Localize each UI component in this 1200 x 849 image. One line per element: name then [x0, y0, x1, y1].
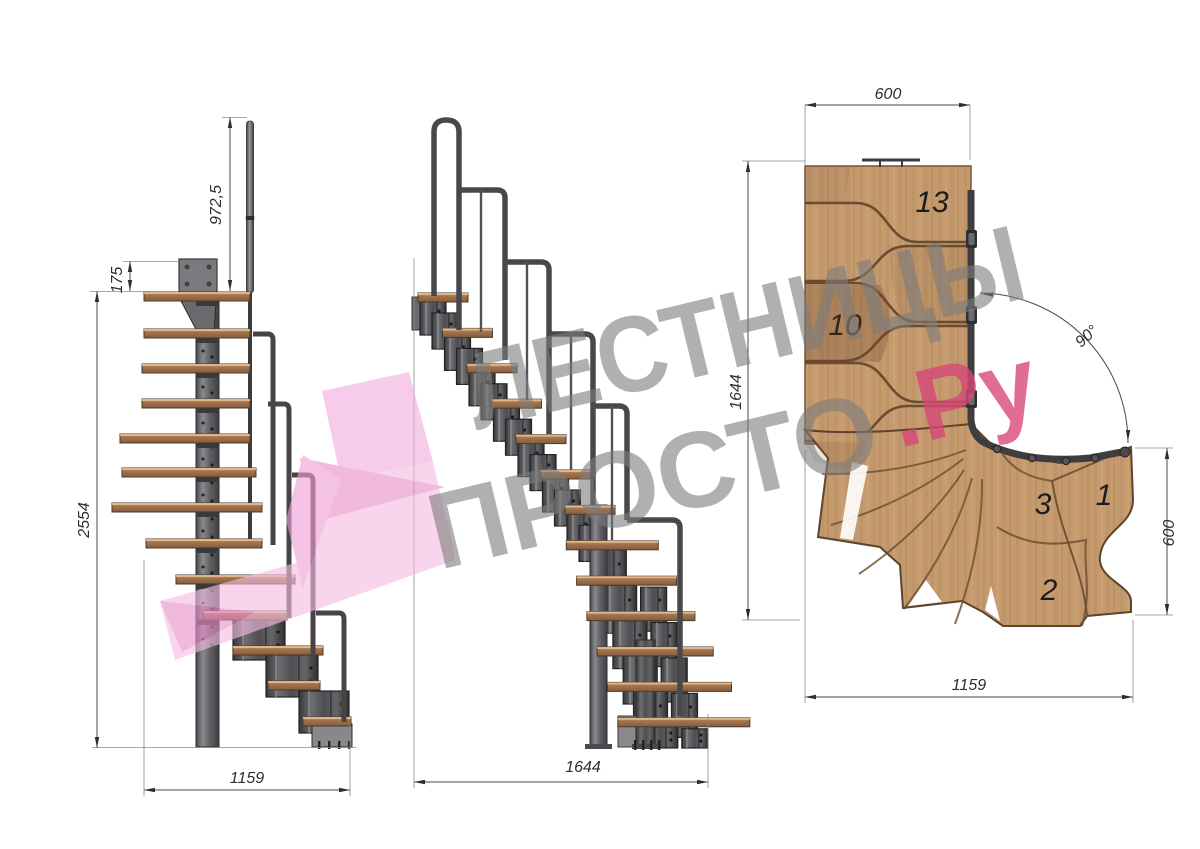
- svg-text:600: 600: [1161, 520, 1178, 547]
- svg-text:600: 600: [875, 86, 902, 103]
- svg-text:2554: 2554: [76, 502, 93, 539]
- svg-text:1159: 1159: [952, 677, 987, 694]
- svg-text:3: 3: [1035, 488, 1052, 521]
- svg-text:13: 13: [915, 186, 949, 219]
- svg-text:2: 2: [1040, 574, 1058, 607]
- svg-text:175: 175: [109, 267, 126, 294]
- svg-text:972,5: 972,5: [208, 185, 225, 225]
- svg-text:1: 1: [1096, 479, 1113, 512]
- svg-text:1644: 1644: [565, 759, 601, 776]
- svg-text:1159: 1159: [230, 770, 265, 787]
